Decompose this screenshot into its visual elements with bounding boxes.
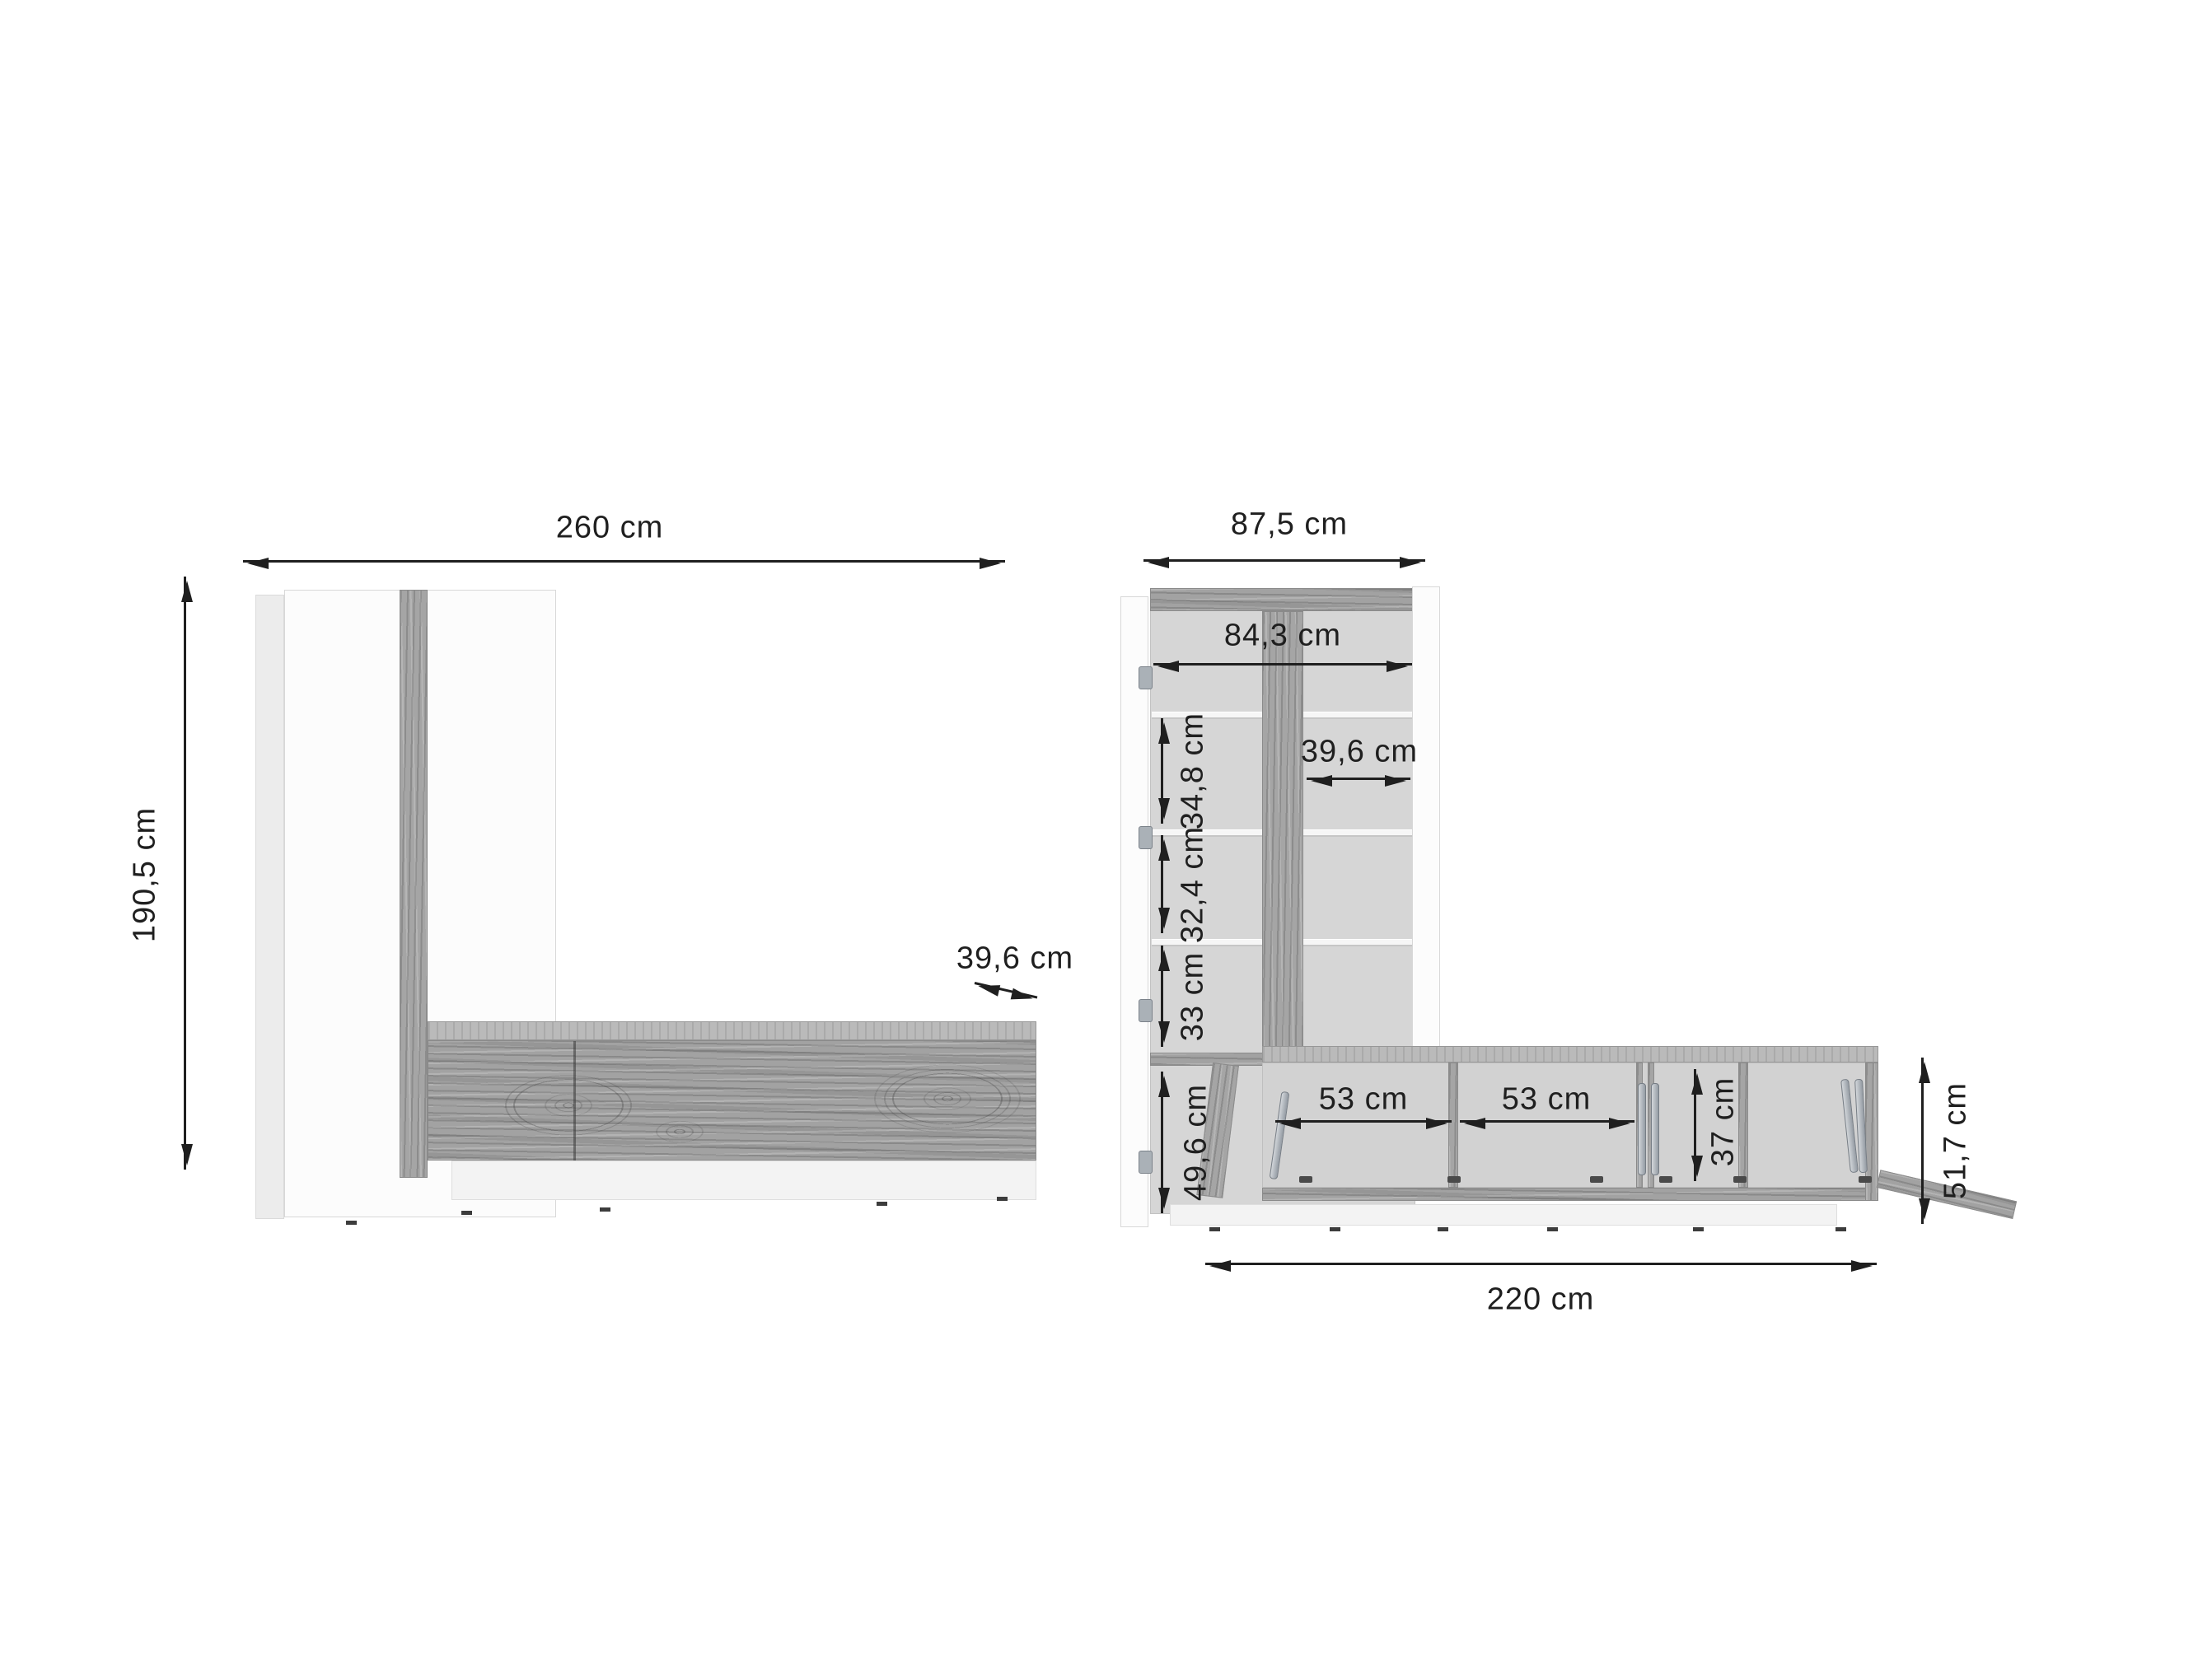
door-hinge-icon bbox=[1139, 666, 1153, 689]
dim-total-width-arrow bbox=[243, 560, 1005, 563]
shelf bbox=[1303, 712, 1414, 719]
foot-mark bbox=[600, 1207, 610, 1212]
cabinet-top-panel bbox=[1150, 588, 1415, 611]
dim-section1-arrow bbox=[1161, 718, 1163, 824]
dim-section2-label: 32,4 cm bbox=[1176, 826, 1211, 943]
dim-tv-width-label: 220 cm bbox=[1487, 1282, 1595, 1318]
flap-fitting-icon bbox=[1590, 1176, 1603, 1183]
dim-section3-arrow bbox=[1161, 946, 1163, 1047]
dim-tv-depth-label: 39,6 cm bbox=[956, 941, 1073, 977]
dim-outer-width-arrow bbox=[1143, 559, 1425, 562]
dim-compartment1-label: 53 cm bbox=[1319, 1082, 1408, 1118]
dim-tv-depth-arrow bbox=[975, 982, 1038, 998]
open-right-door bbox=[1412, 586, 1440, 1061]
shelf bbox=[1303, 829, 1414, 837]
center-wood-strip bbox=[1262, 611, 1303, 1053]
dim-total-height-label: 190,5 cm bbox=[128, 807, 163, 942]
foot-mark bbox=[997, 1197, 1008, 1201]
tv-stand-door-seam bbox=[573, 1041, 576, 1161]
foot-mark bbox=[1547, 1227, 1558, 1231]
tv-stand-floor bbox=[1262, 1188, 1878, 1201]
foot-mark bbox=[346, 1221, 357, 1225]
dim-section2-arrow bbox=[1161, 835, 1163, 933]
dim-inner-width-label: 84,3 cm bbox=[1224, 619, 1341, 654]
dim-tv-height-arrow bbox=[1921, 1058, 1924, 1224]
dim-outer-width-label: 87,5 cm bbox=[1231, 507, 1348, 543]
gas-strut-icon bbox=[1651, 1083, 1659, 1175]
dim-total-width-label: 260 cm bbox=[556, 511, 664, 546]
dim-compartment1-arrow bbox=[1275, 1120, 1452, 1123]
dim-compartment2-arrow bbox=[1460, 1120, 1634, 1123]
flap-fitting-icon bbox=[1659, 1176, 1672, 1183]
dim-section4-arrow bbox=[1161, 1072, 1163, 1213]
flap-fitting-icon bbox=[1447, 1176, 1461, 1183]
tall-cabinet-side-panel bbox=[255, 595, 284, 1219]
door-hinge-icon bbox=[1139, 999, 1153, 1022]
foot-mark bbox=[1209, 1227, 1220, 1231]
foot-mark bbox=[1330, 1227, 1340, 1231]
dim-tv-height-label: 51,7 cm bbox=[1938, 1082, 1974, 1199]
door-hinge-icon bbox=[1139, 1151, 1153, 1174]
dim-compartment2-label: 53 cm bbox=[1502, 1082, 1591, 1118]
tv-stand-plinth bbox=[1170, 1204, 1837, 1226]
wood-knot bbox=[873, 1064, 1022, 1133]
flap-fitting-icon bbox=[1299, 1176, 1312, 1183]
gas-strut-icon bbox=[1638, 1083, 1646, 1175]
tv-stand-front bbox=[428, 1040, 1036, 1161]
tv-stand-plinth bbox=[451, 1161, 1036, 1200]
tv-stand-top-surface bbox=[428, 1021, 1036, 1040]
wood-knot bbox=[503, 1074, 634, 1137]
door-hinge-icon bbox=[1139, 826, 1153, 849]
dim-compartment-height-label: 37 cm bbox=[1706, 1077, 1742, 1166]
dim-section4-label: 49,6 cm bbox=[1179, 1084, 1214, 1201]
dim-section3-label: 33 cm bbox=[1176, 952, 1211, 1041]
shelf bbox=[1303, 939, 1414, 946]
foot-mark bbox=[1438, 1227, 1448, 1231]
dim-section1-label: 34,8 cm bbox=[1176, 712, 1211, 829]
foot-mark bbox=[877, 1202, 887, 1206]
dim-inner-depth-arrow bbox=[1307, 778, 1410, 780]
flap-fitting-icon bbox=[1733, 1176, 1747, 1183]
tv-stand-open-top bbox=[1262, 1046, 1878, 1063]
furniture-dimension-diagram: 260 cm 190,5 cm 39,6 cm bbox=[0, 0, 2212, 1658]
accent-wood-strip bbox=[400, 590, 428, 1178]
foot-mark bbox=[461, 1211, 472, 1215]
dim-tv-width-arrow bbox=[1205, 1263, 1877, 1265]
dim-inner-depth-label: 39,6 cm bbox=[1301, 735, 1418, 770]
dim-compartment-height-arrow bbox=[1694, 1069, 1696, 1181]
dim-total-height-arrow bbox=[184, 577, 186, 1170]
foot-mark bbox=[1693, 1227, 1704, 1231]
wood-knot bbox=[634, 1111, 725, 1152]
foot-mark bbox=[1836, 1227, 1846, 1231]
open-left-door bbox=[1120, 596, 1148, 1227]
flap-fitting-icon bbox=[1859, 1176, 1872, 1183]
dim-inner-width-arrow bbox=[1153, 663, 1412, 666]
